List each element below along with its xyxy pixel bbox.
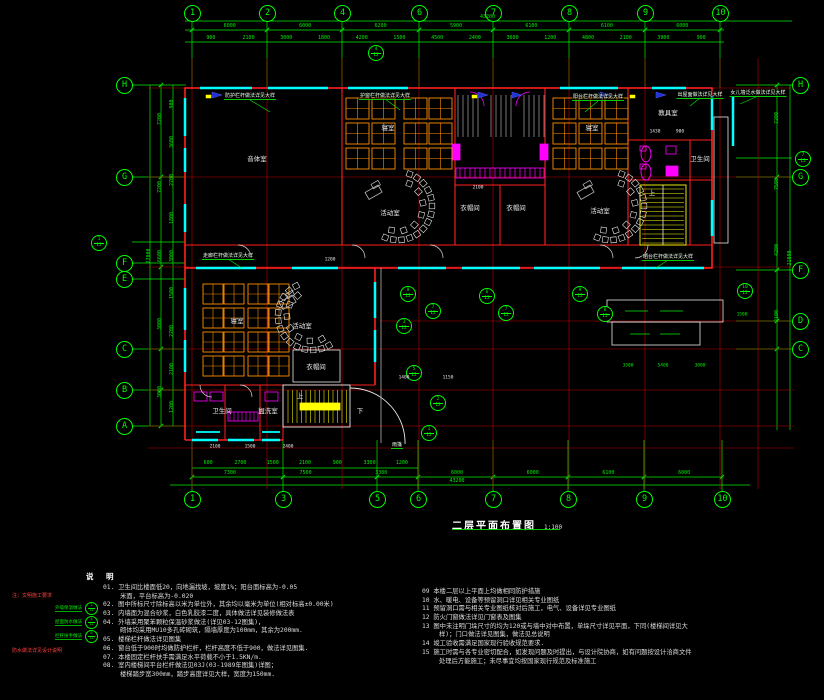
dimension-left-minor: 900	[169, 99, 175, 108]
detail-marker-0: 412	[368, 45, 384, 61]
note-item-07: 07. 本楼固定栏杆扶手需满足水平荷载不小于1.5KN/m.	[103, 654, 421, 663]
dimension-bottom-minor: 1200	[396, 460, 408, 466]
dimension-top-major: 6200	[375, 23, 387, 29]
legend-detail-ref: 412	[85, 616, 98, 629]
grid-bubble-right-F: F	[792, 262, 809, 279]
legend-label: 屋面防水做法	[55, 619, 82, 626]
dimension-left-minor: 3000	[169, 249, 175, 261]
note-item-01: 01. 卫生间比楼面低20，向地漏找坡，坡度1%；阳台面标高为-0.05	[103, 584, 421, 593]
annotation-6: 晒台栏杆做法详见大样	[642, 253, 694, 261]
grid-bubble-right-H: H	[792, 77, 809, 94]
dimension-left-major: 6600	[157, 249, 163, 261]
detail-sheet: 12	[399, 326, 408, 332]
dimension-bottom-major: 7300	[224, 470, 236, 476]
inner-dimension-11: 3000	[695, 364, 706, 369]
grid-bubble-top-6: 6	[411, 5, 428, 22]
legend-label: 栏杆扶手做法	[55, 633, 82, 640]
room-label-0: 音体室	[247, 153, 267, 163]
dimension-top-minor: 900	[206, 35, 215, 41]
dimension-left-minor: 2700	[169, 174, 175, 186]
grid-bubble-bottom-5: 5	[369, 491, 386, 508]
annotation-3: 出屋面做法详见大样	[676, 91, 723, 99]
annotation-4: 女儿墙泛水做法详见大样	[729, 89, 786, 97]
dimension-bottom-major: 3300	[375, 470, 387, 476]
note-item-04-cont: 砌体均采用MU10多孔砖砌筑，隔墙厚度为100mm，其余为200mm.	[103, 627, 421, 636]
legend-row-0: 外墙保温做法212	[12, 601, 98, 615]
room-label-7: 衣帽间	[460, 202, 480, 212]
grid-bubble-top-8: 8	[561, 5, 578, 22]
detail-marker-5: 612	[479, 288, 495, 304]
dimension-top-minor: 3900	[657, 35, 669, 41]
dimension-left-minor: 2700	[169, 325, 175, 337]
inner-dimension-9: 3300	[623, 364, 634, 369]
dimension-top-total: 43200	[480, 14, 495, 20]
legend-ref-sheet: 12	[88, 608, 94, 613]
dimension-bottom-major: 6000	[451, 470, 463, 476]
dimension-right-major: 2100	[774, 310, 780, 322]
note-item-11: 11 预留洞口需与相关专业图纸核对后施工，电气、设备详见专业图纸	[422, 605, 762, 614]
grid-bubble-left-C: C	[116, 341, 133, 358]
dimension-top-minor: 3000	[280, 35, 292, 41]
grid-bubble-left-F: F	[116, 255, 133, 272]
dimension-top-minor: 900	[697, 35, 706, 41]
detail-marker-9: 812	[597, 306, 613, 322]
dimension-left-major: 3000	[157, 386, 163, 398]
detail-marker-1: 112	[91, 235, 107, 251]
dimension-right-major: 4200	[774, 244, 780, 256]
dimension-top-major: 6000	[676, 23, 688, 29]
notes-column-left: 01. 卫生间比楼面低20，向地漏找坡，坡度1%；阳台面标高为-0.05米面，平…	[103, 584, 421, 680]
grid-bubble-left-H: H	[116, 77, 133, 94]
dimension-left-minor: 2100	[169, 363, 175, 375]
inner-dimension-5: 1200	[325, 258, 336, 263]
detail-sheet: 12	[433, 403, 442, 409]
grid-bubble-left-A: A	[116, 418, 133, 435]
room-label-13: 卫生间	[212, 405, 232, 415]
detail-sheet: 12	[798, 159, 807, 165]
legend-row-1: 屋面防水做法412	[12, 615, 98, 629]
detail-sheet: 12	[600, 314, 609, 320]
legend-block: 注：文明施工要求 外墙保温做法212屋面防水做法412栏杆扶手做法612 防水做…	[12, 592, 98, 654]
note-item-15: 15 施工时需与各专业密切配合，如发现问题及时提出，与设计院协商，如有问题按设计…	[422, 649, 762, 658]
legend-ref-sheet: 12	[88, 622, 94, 627]
detail-marker-13: 112	[421, 425, 437, 441]
note-item-02: 02. 图中所标尺寸除标高以米为单位外，其余均以毫米为单位(相对标高±0.00米…	[103, 601, 421, 610]
dimension-left-major: 3000	[157, 318, 163, 330]
grid-bubble-right-C: C	[792, 341, 809, 358]
grid-bubble-bottom-9: 9	[636, 491, 653, 508]
grid-bubble-bottom-10: 10	[714, 491, 731, 508]
grid-bubble-bottom-3: 3	[275, 491, 292, 508]
grid-bubble-right-G: G	[792, 169, 809, 186]
detail-sheet: 12	[409, 373, 418, 379]
note-item-12: 12 防火门窗做法详见门窗表及图集	[422, 614, 762, 623]
note-item-05: 05. 楼梯栏杆做法详见图集	[103, 636, 421, 645]
detail-sheet: 12	[428, 311, 437, 317]
dimension-top-minor: 4800	[582, 35, 594, 41]
note-item-03: 03. 内墙面为混合砂浆，白色乳胶漆二度，具体做法详见装修做法表	[103, 610, 421, 619]
dimension-right-major: 7500	[774, 178, 780, 190]
grid-bubble-bottom-6: 6	[410, 491, 427, 508]
grid-bubble-left-G: G	[116, 169, 133, 186]
annotation-0: 防护栏杆做法详见大样	[224, 92, 276, 100]
note-item-14: 14 竣工验收需满足国家现行验收规范要求.	[422, 640, 762, 649]
inner-dimension-10: 5400	[658, 364, 669, 369]
dimension-left-minor: 1800	[169, 212, 175, 224]
legend-rows: 外墙保温做法212屋面防水做法412栏杆扶手做法612	[12, 601, 98, 643]
room-label-3: 教具室	[658, 107, 678, 117]
dimension-top-minor: 4200	[356, 35, 368, 41]
room-label-11: 活动室	[292, 320, 312, 330]
detail-marker-6: 912	[572, 286, 588, 302]
dimension-right-major: 7200	[774, 112, 780, 124]
room-label-6: 活动室	[590, 205, 610, 215]
inner-dimension-7: 1500	[245, 445, 256, 450]
title-underline	[452, 529, 560, 530]
inner-dimension-6: 2100	[210, 445, 221, 450]
dimension-bottom-major: 7500	[300, 470, 312, 476]
grid-bubble-left-E: E	[116, 271, 133, 288]
notes-column-right: 09 本楼二层以上平面上均做相同防护措施10 水、暖电、设备等预留洞口详见相关专…	[422, 588, 762, 666]
annotation-1: 护窗栏杆做法详见大样	[359, 92, 411, 100]
room-label-10: 寝室	[231, 315, 244, 325]
inner-dimension-12: 1500	[737, 313, 748, 318]
dimension-left-minor: 1200	[169, 401, 175, 413]
dimension-bottom-minor: 2700	[234, 460, 246, 466]
note-item-15-cont: 处理后方能施工；未尽事宜均按国家现行规范及标准施工	[422, 658, 762, 667]
dimension-top-minor: 4500	[431, 35, 443, 41]
legend-ref-sheet: 12	[88, 636, 94, 641]
dimension-left-major: 7200	[157, 113, 163, 125]
legend-detail-ref: 212	[85, 602, 98, 615]
dimension-top-major: 6100	[525, 23, 537, 29]
legend-detail-ref: 612	[85, 630, 98, 643]
grid-bubble-top-1: 1	[184, 5, 201, 22]
grid-bubble-top-2: 2	[259, 5, 276, 22]
inner-dimension-3: 1430	[650, 130, 661, 135]
detail-marker-8: 712	[498, 305, 514, 321]
dimension-bottom-major: 6000	[527, 470, 539, 476]
detail-sheet: 12	[740, 291, 749, 297]
grid-bubble-bottom-7: 7	[485, 491, 502, 508]
dimension-top-minor: 2100	[620, 35, 632, 41]
detail-marker-2: 712	[795, 151, 811, 167]
dimension-top-major: 5900	[450, 23, 462, 29]
detail-marker-3: 1012	[737, 283, 753, 299]
annotation-5: 走廊栏杆做法详见大样	[202, 252, 254, 260]
note-item-13-cont: 样)；门口做法详见图集，做法见总说明	[422, 631, 762, 640]
detail-sheet: 12	[424, 433, 433, 439]
detail-marker-12: 212	[430, 395, 446, 411]
dimension-top-minor: 1500	[393, 35, 405, 41]
legend-label: 外墙保温做法	[55, 605, 82, 612]
room-label-12: 衣帽间	[306, 361, 326, 371]
inner-dimension-4: 900	[676, 130, 684, 135]
dimension-top-minor: 2100	[243, 35, 255, 41]
room-label-2: 寝室	[586, 122, 599, 132]
dimension-bottom-major: 6100	[602, 470, 614, 476]
annotation-7: 雨篷	[391, 441, 403, 449]
legend-title: 注：文明施工要求	[12, 592, 98, 599]
dimension-left-minor: 1500	[169, 287, 175, 299]
detail-sheet: 12	[575, 294, 584, 300]
inner-dimension-2: 2100	[473, 186, 484, 191]
inner-dimension-1: 1150	[443, 376, 454, 381]
dimension-bottom-minor: 900	[333, 460, 342, 466]
annotation-2: 阳台栏杆做法详见大样	[572, 93, 624, 101]
grid-bubble-top-10: 10	[712, 5, 729, 22]
room-label-14: 盥洗室	[258, 405, 278, 415]
text-overlay-layer: 二层平面布置图1:100 说 明 01. 卫生间比楼面低20，向地漏找坡，坡度1…	[0, 0, 824, 700]
legend-row-2: 栏杆扶手做法612	[12, 629, 98, 643]
dimension-top-minor: 3600	[507, 35, 519, 41]
dimension-bottom-major: 6000	[678, 470, 690, 476]
note-item-06: 06. 窗台低于900时均做防护栏杆，栏杆高度不低于900，做法详见图集.	[103, 645, 421, 654]
dimension-top-minor: 2400	[469, 35, 481, 41]
grid-bubble-top-9: 9	[637, 5, 654, 22]
detail-marker-10: 312	[396, 318, 412, 334]
dimension-left-major: 7200	[157, 181, 163, 193]
dimension-bottom-total: 43200	[449, 478, 464, 484]
notes-header: 说 明	[86, 571, 118, 582]
dimension-right-total: 21000	[787, 250, 793, 265]
detail-marker-4: 912	[400, 286, 416, 302]
dimension-bottom-minor: 600	[204, 460, 213, 466]
room-label-16: 下	[357, 405, 364, 415]
inner-dimension-0: 1400	[399, 376, 410, 381]
note-item-08-cont: 楼梯踏步宽300mm，踏步高度详见大样，宽度为150mm.	[103, 671, 421, 680]
detail-sheet: 12	[94, 243, 103, 249]
room-label-8: 衣帽间	[506, 202, 526, 212]
grid-bubble-left-B: B	[116, 382, 133, 399]
room-label-9: 上	[649, 187, 656, 197]
dimension-top-major: 6000	[299, 23, 311, 29]
dimension-top-minor: 1800	[318, 35, 330, 41]
room-label-15: 上	[297, 390, 304, 400]
detail-sheet: 12	[501, 313, 510, 319]
note-item-08: 08. 室内楼梯间平台栏杆做法见03J(03-1989年图集)详图；	[103, 662, 421, 671]
room-label-1: 寝室	[382, 122, 395, 132]
dimension-top-major: 6100	[601, 23, 613, 29]
grid-bubble-top-4: 4	[334, 5, 351, 22]
dimension-top-major: 6000	[224, 23, 236, 29]
detail-sheet: 12	[371, 53, 380, 59]
detail-sheet: 12	[403, 294, 412, 300]
dimension-left-total: 27000	[146, 248, 152, 263]
drawing-title-block: 二层平面布置图1:100	[452, 514, 562, 533]
detail-marker-7: 712	[425, 303, 441, 319]
room-label-4: 卫生间	[690, 153, 710, 163]
dimension-bottom-minor: 2100	[299, 460, 311, 466]
cad-drawing-canvas: 二层平面布置图1:100 说 明 01. 卫生间比楼面低20，向地漏找坡，坡度1…	[0, 0, 824, 700]
room-label-5: 活动室	[380, 207, 400, 217]
detail-sheet: 12	[482, 296, 491, 302]
note-item-09: 09 本楼二层以上平面上均做相同防护措施	[422, 588, 762, 597]
grid-bubble-bottom-8: 8	[560, 491, 577, 508]
drawing-title: 二层平面布置图	[452, 521, 536, 532]
dimension-left-minor: 3600	[169, 136, 175, 148]
inner-dimension-8: 2400	[283, 445, 294, 450]
dimension-bottom-minor: 3300	[364, 460, 376, 466]
legend-footer: 防水做法详见设计说明	[12, 647, 98, 654]
dimension-top-minor: 1200	[544, 35, 556, 41]
grid-bubble-right-D: D	[792, 313, 809, 330]
dimension-bottom-minor: 1500	[267, 460, 279, 466]
grid-bubble-bottom-1: 1	[184, 491, 201, 508]
